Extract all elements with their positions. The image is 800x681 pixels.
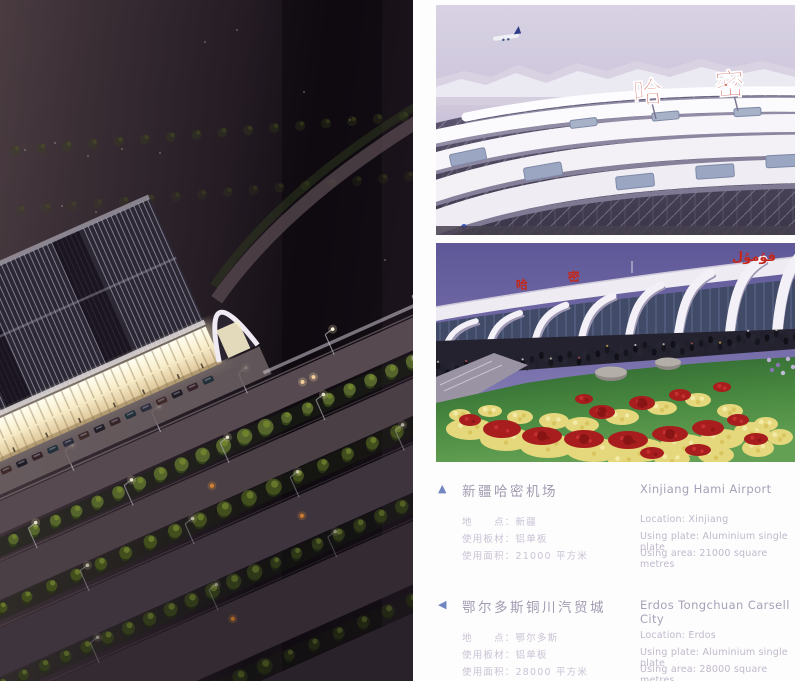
roof-char-right: 密 xyxy=(567,269,580,285)
section-erdos-tongchuan: ◀ 鄂尔多斯铜川汽贸城 Erdos Tongchuan Carsell City… xyxy=(436,596,795,679)
detail-row: 使用面积：28000 平方米 Using area: 28000 square … xyxy=(436,662,795,679)
section-title-zh: 新疆哈密机场 xyxy=(462,480,558,500)
section-title-en: Xinjiang Hami Airport xyxy=(640,482,772,496)
roof-char-left: 哈 xyxy=(631,75,664,112)
detail-row: 使用面积：21000 平方米 Using area: 21000 square … xyxy=(436,546,795,563)
entrance-photo-art: 哈 密 قۇمۇل xyxy=(436,243,795,462)
catalog-spread: 哈 密 xyxy=(0,0,800,681)
section-xinjiang-hami-airport: ▲ 新疆哈密机场 Xinjiang Hami Airport 地 点：新疆 Lo… xyxy=(436,480,795,563)
detail-row: 使用板材：铝单板 Using plate: Aluminium single p… xyxy=(436,529,795,546)
section-heading: ◀ 鄂尔多斯铜川汽贸城 Erdos Tongchuan Carsell City xyxy=(436,596,795,616)
roof-char-left: 哈 xyxy=(515,277,528,293)
section-title-en: Erdos Tongchuan Carsell City xyxy=(640,598,795,626)
detail-zh: 使用面积：21000 平方米 xyxy=(462,548,588,562)
detail-rows: 地 点：鄂尔多斯 Location: Erdos 使用板材：铝单板 Using … xyxy=(436,628,795,679)
detail-en: Location: Erdos xyxy=(640,630,716,641)
detail-row: 地 点：鄂尔多斯 Location: Erdos xyxy=(436,628,795,645)
hami-airport-entrance-photo: 哈 密 قۇمۇل xyxy=(436,243,795,462)
detail-zh: 地 点：新疆 xyxy=(462,514,537,528)
detail-zh: 使用面积：28000 平方米 xyxy=(462,664,588,678)
detail-zh: 地 点：鄂尔多斯 xyxy=(462,630,558,644)
detail-en: Using area: 21000 square metres xyxy=(640,548,795,570)
section-title-zh: 鄂尔多斯铜川汽贸城 xyxy=(462,596,606,616)
night-aerial-photo xyxy=(0,0,413,681)
hami-airport-roof-photo: 哈 密 xyxy=(436,5,795,235)
detail-zh: 使用板材：铝单板 xyxy=(462,531,548,545)
detail-row: 地 点：新疆 Location: Xinjiang xyxy=(436,512,795,529)
night-aerial-art xyxy=(0,0,413,681)
roof-char-right: 密 xyxy=(714,67,746,104)
triangle-up-icon: ▲ xyxy=(438,483,446,494)
corner-sign: قۇمۇل xyxy=(732,250,776,265)
detail-rows: 地 点：新疆 Location: Xinjiang 使用板材：铝单板 Using… xyxy=(436,512,795,563)
detail-zh: 使用板材：铝单板 xyxy=(462,647,548,661)
caption-sections: ▲ 新疆哈密机场 Xinjiang Hami Airport 地 点：新疆 Lo… xyxy=(436,470,795,681)
detail-en: Using area: 28000 square metres xyxy=(640,664,795,681)
photo-bottom-edge xyxy=(436,226,795,235)
detail-row: 使用板材：铝单板 Using plate: Aluminium single p… xyxy=(436,645,795,662)
roof-photo-art: 哈 密 xyxy=(436,5,795,235)
detail-en: Location: Xinjiang xyxy=(640,514,728,525)
section-heading: ▲ 新疆哈密机场 Xinjiang Hami Airport xyxy=(436,480,795,500)
triangle-left-icon: ◀ xyxy=(438,599,446,610)
